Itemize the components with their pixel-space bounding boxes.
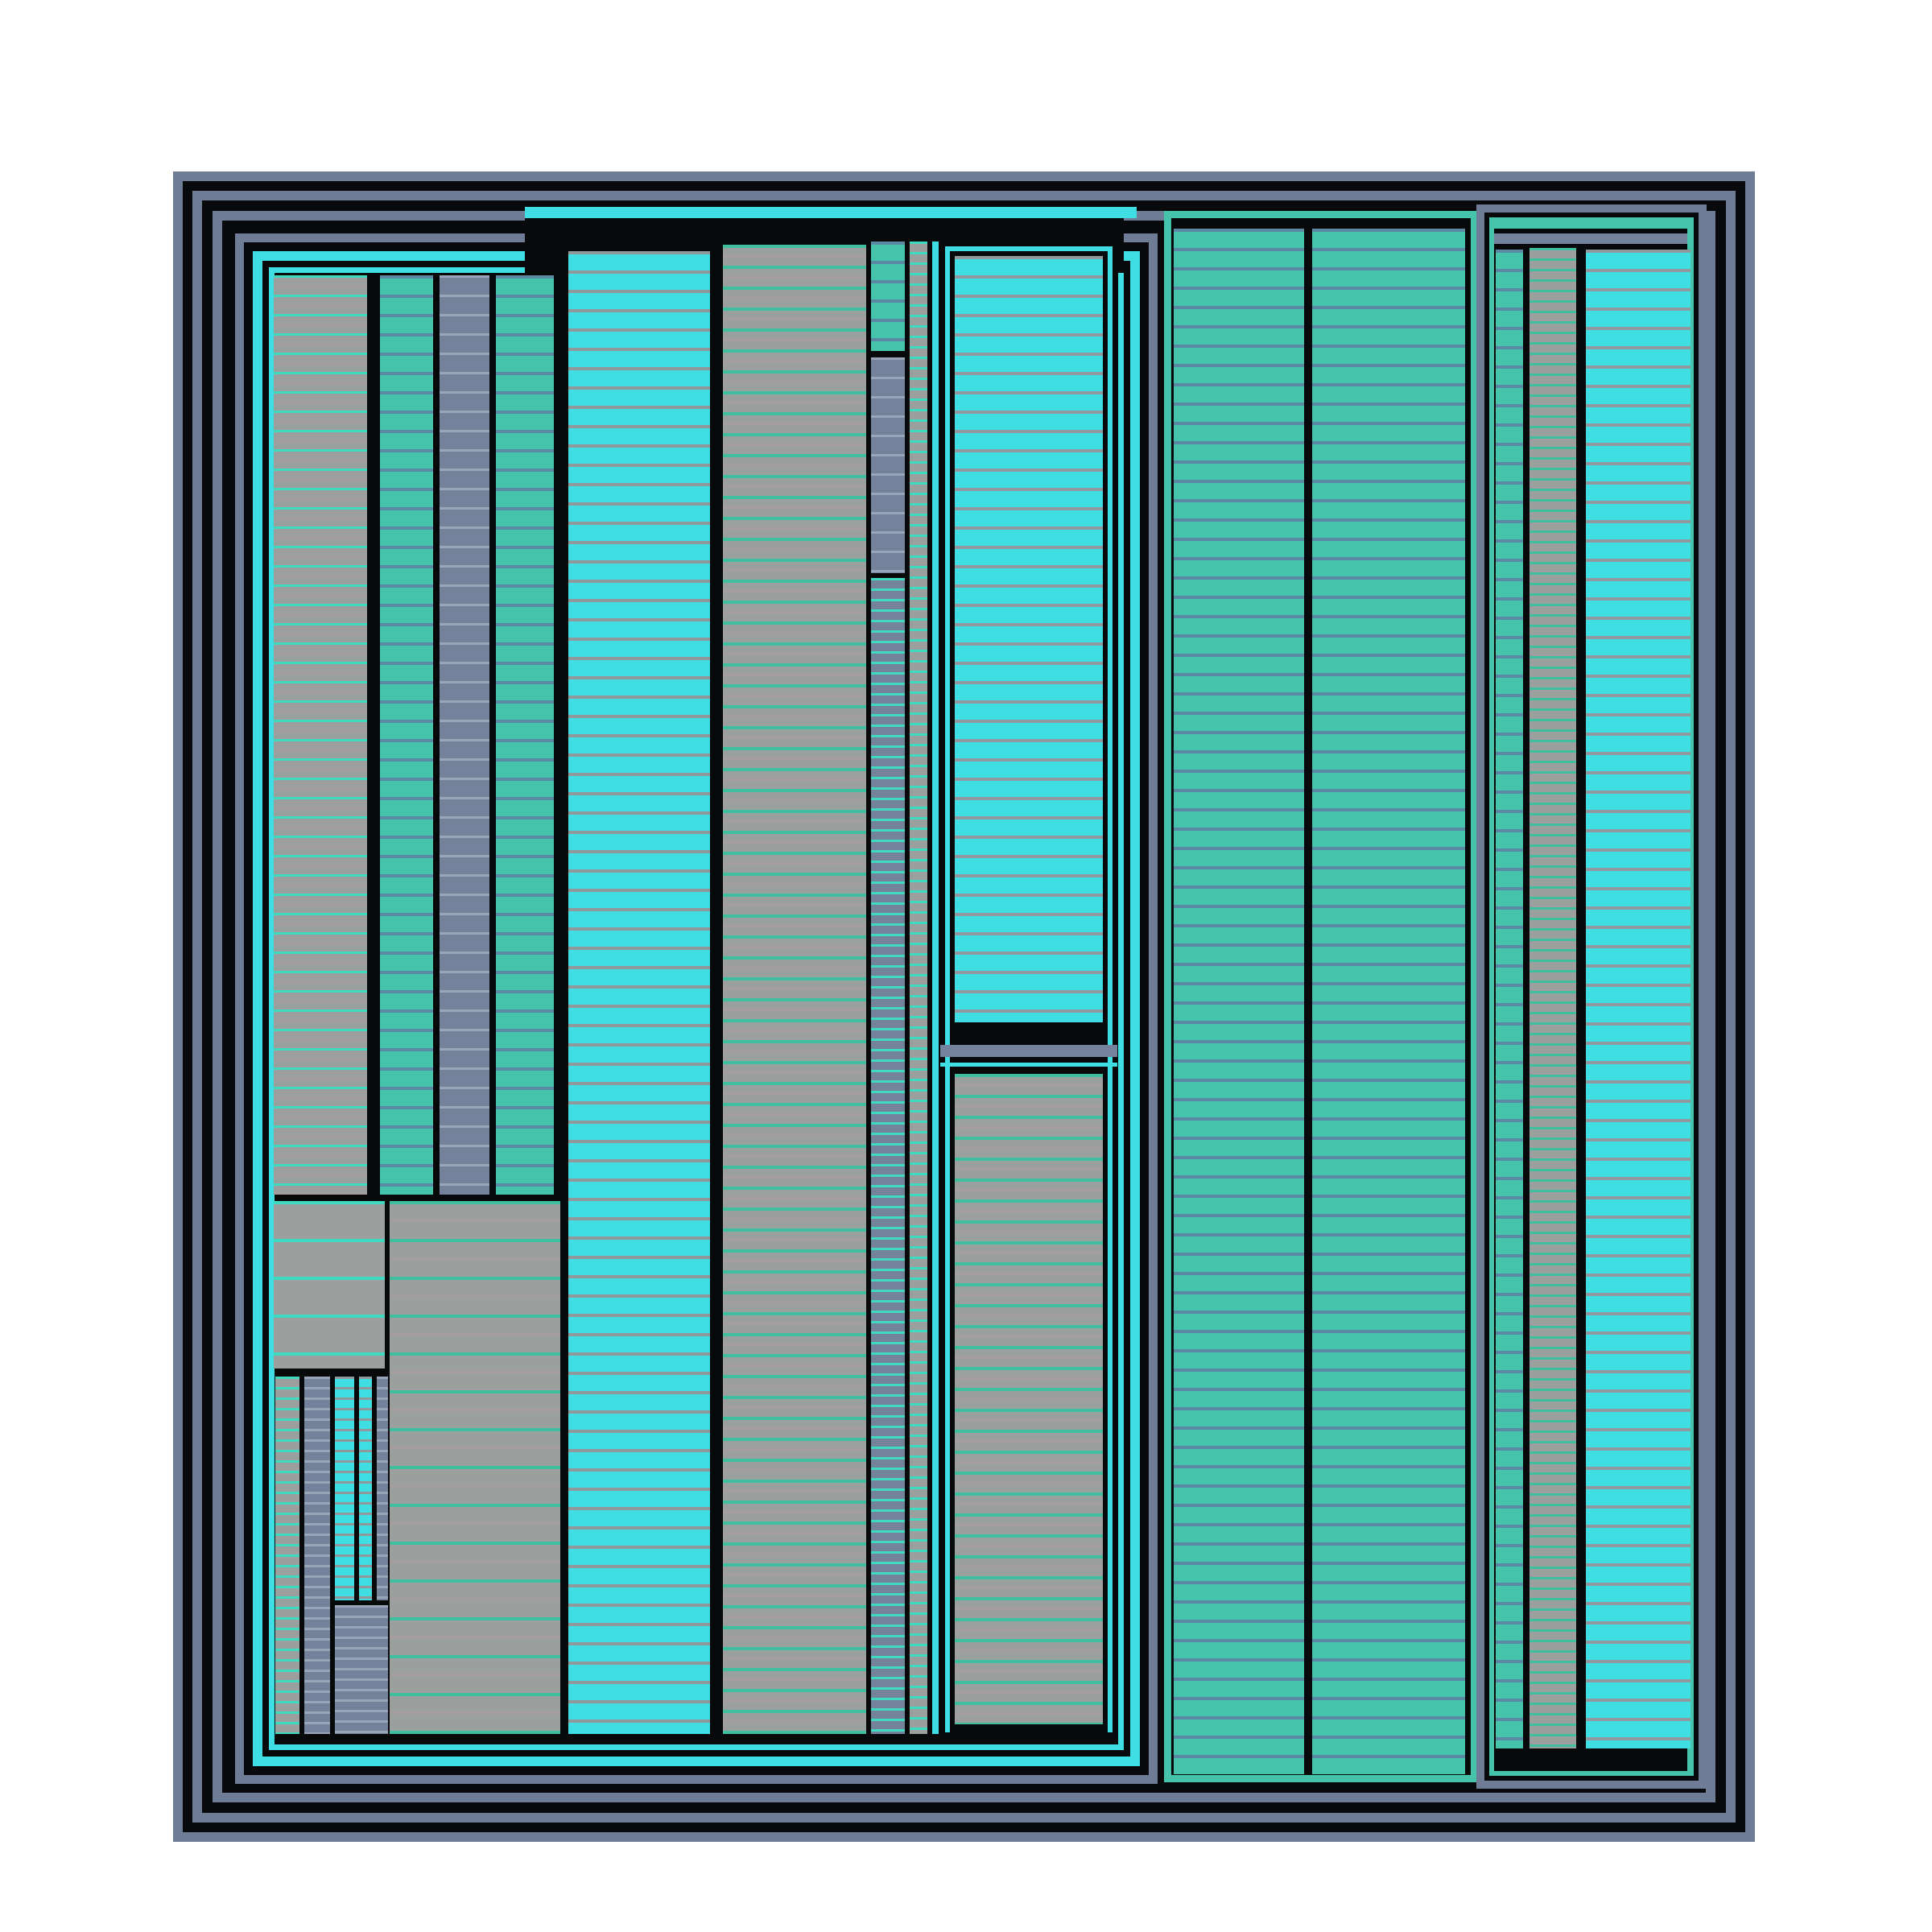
mid-cyan-sliver	[932, 242, 939, 1734]
block-gray-small	[274, 1201, 385, 1368]
framed-top-cyan-bar	[955, 256, 1103, 1022]
bar-gray-wide	[723, 245, 866, 1734]
sm-block-slate	[335, 1605, 388, 1734]
sm-bar-slate	[304, 1377, 330, 1734]
farright-gray-bar	[1529, 248, 1576, 1748]
framed-bottom-gray-bar	[955, 1074, 1103, 1724]
sm-bar-slate-2	[377, 1377, 388, 1600]
mid-bar-striped-segment	[871, 578, 905, 1734]
mid-bar-gray-narrow	[910, 242, 927, 1734]
left-block-top-step-cyan	[525, 207, 1137, 218]
farright-green-bar	[1496, 250, 1523, 1748]
framed-cyan-line	[940, 1063, 1117, 1067]
farright-slate-header	[1494, 233, 1687, 244]
sm-bar-gray	[275, 1377, 299, 1734]
bar-teal-wide-1	[1174, 229, 1304, 1774]
sm-bar-cyan-2	[359, 1377, 372, 1600]
farright-cyan-bar	[1586, 250, 1690, 1748]
sm-bar-cyan-1	[335, 1377, 354, 1600]
bar-slate-narrow	[440, 275, 489, 1195]
bar-teal-narrow-1	[380, 275, 433, 1195]
framed-slate-separator	[940, 1045, 1117, 1057]
mid-bar-slate-segment	[871, 357, 905, 573]
chip-layout-viewport	[0, 0, 1932, 1932]
bar-gray-tall-left	[274, 275, 367, 1195]
mid-bar-teal-segment	[871, 242, 905, 351]
bar-teal-wide-2	[1312, 229, 1465, 1774]
block-gray-large	[390, 1201, 560, 1734]
bar-teal-narrow-2	[496, 275, 554, 1195]
bar-cyan-wide	[568, 251, 710, 1734]
